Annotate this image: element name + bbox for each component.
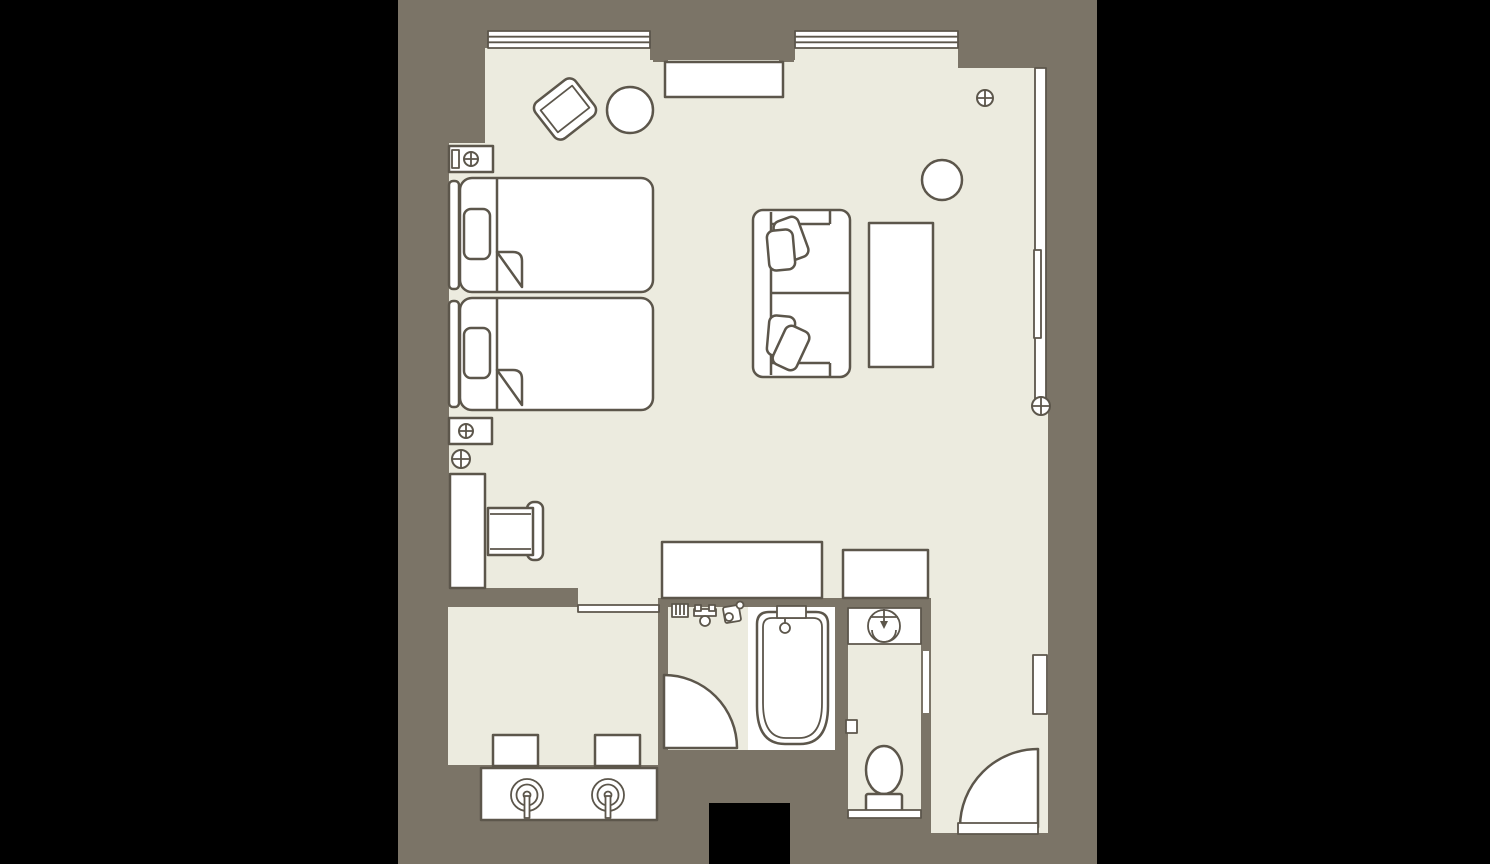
stool-2 bbox=[595, 735, 640, 766]
twin-bed-1 bbox=[449, 178, 653, 292]
desk-chair-seat bbox=[488, 508, 533, 555]
ceiling-light-icon bbox=[452, 450, 470, 468]
bottom-blackout-notch bbox=[709, 803, 790, 864]
twin-bed-2 bbox=[449, 298, 653, 410]
pillow bbox=[464, 209, 490, 259]
desk bbox=[450, 474, 485, 588]
vanity-counter bbox=[481, 768, 657, 820]
window-right-wall-mullion bbox=[1034, 250, 1041, 338]
paper-holder bbox=[846, 720, 857, 733]
headboard-1 bbox=[449, 181, 459, 289]
floor-plan-canvas bbox=[0, 0, 1490, 864]
bathtub bbox=[757, 606, 828, 744]
ceiling-light-icon bbox=[1032, 397, 1050, 415]
toilet bbox=[866, 746, 902, 812]
floor-plan bbox=[0, 0, 1490, 864]
towel-rack-icon bbox=[672, 604, 688, 617]
window-top-right bbox=[795, 31, 958, 48]
wall-pier-jamb-left bbox=[653, 48, 668, 62]
washbasin bbox=[868, 609, 900, 642]
round-side-table-2 bbox=[922, 160, 962, 200]
coffee-table bbox=[869, 223, 933, 367]
nightstand-1 bbox=[449, 146, 493, 172]
wall-niche-left bbox=[923, 651, 929, 713]
wall-niche-right bbox=[1033, 655, 1047, 714]
tub-faucet-deck bbox=[777, 606, 806, 618]
toilet-threshold bbox=[848, 810, 921, 818]
ceiling-light-icon bbox=[977, 90, 993, 106]
round-side-table-1 bbox=[607, 87, 653, 133]
wall-bedroom-dressing bbox=[440, 588, 578, 607]
wall-pier-jamb-right bbox=[779, 48, 794, 62]
wall-pier-between-windows bbox=[650, 30, 795, 60]
sofa-cushion bbox=[766, 229, 795, 271]
telephone bbox=[452, 150, 459, 168]
headboard-2 bbox=[449, 301, 459, 407]
pocket-door bbox=[578, 605, 659, 612]
nightstand-2 bbox=[449, 418, 492, 444]
entry-threshold bbox=[958, 823, 1038, 834]
stool-1 bbox=[493, 735, 538, 766]
pillow bbox=[464, 328, 490, 378]
sofa bbox=[753, 210, 850, 377]
wall-top-left bbox=[440, 48, 485, 143]
closet-2 bbox=[843, 550, 928, 598]
faucet bbox=[606, 796, 611, 818]
closet-1 bbox=[662, 542, 822, 598]
faucet bbox=[525, 796, 530, 818]
console-cabinet bbox=[665, 62, 783, 97]
window-top-left bbox=[488, 31, 650, 48]
wall-top-right-step bbox=[958, 48, 1035, 68]
window-right-wall bbox=[1034, 68, 1046, 408]
desk-chair bbox=[488, 502, 543, 560]
